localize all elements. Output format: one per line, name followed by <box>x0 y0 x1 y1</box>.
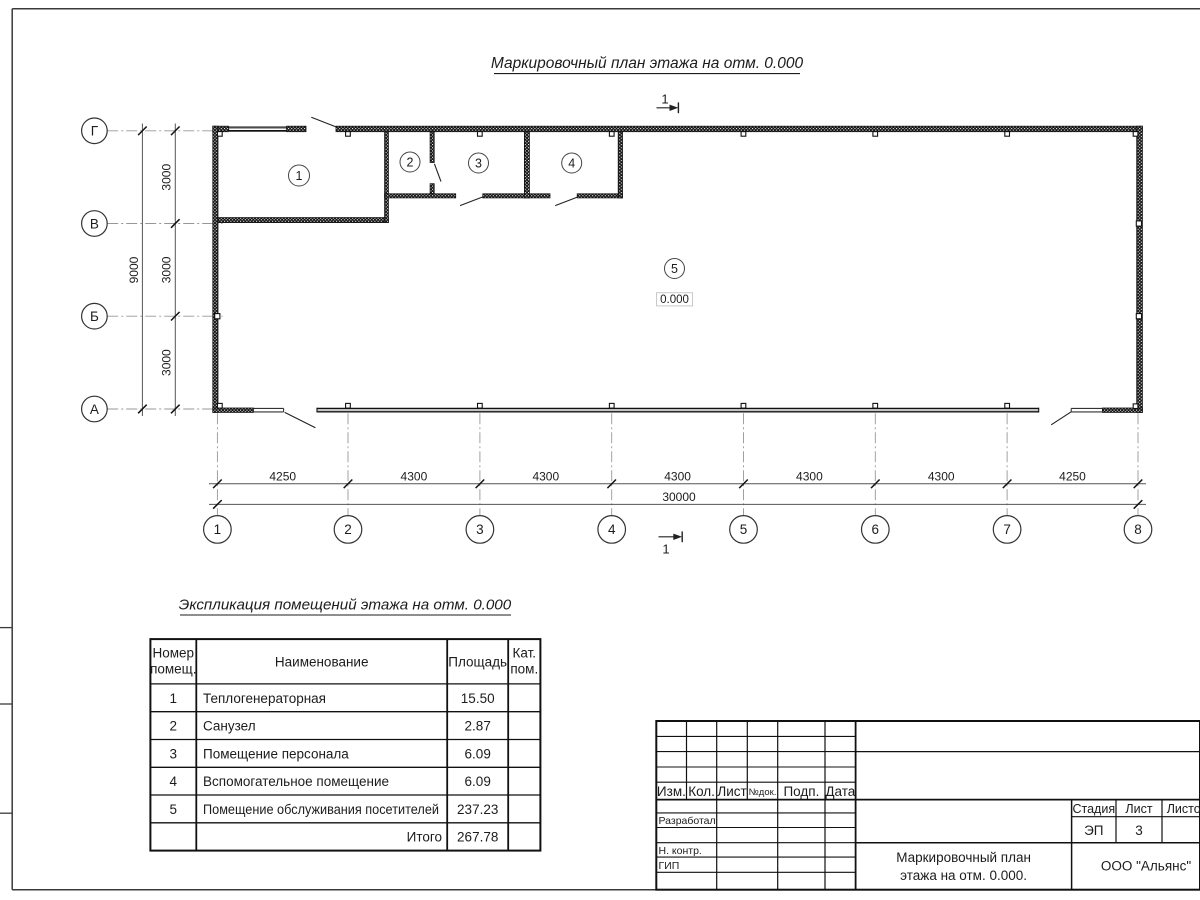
svg-text:ООО "Альянс": ООО "Альянс" <box>1101 859 1191 874</box>
svg-text:3: 3 <box>476 522 484 537</box>
svg-text:1: 1 <box>661 92 668 107</box>
svg-text:4: 4 <box>608 522 616 537</box>
svg-text:6.09: 6.09 <box>465 774 491 789</box>
svg-text:Изм.: Изм. <box>657 784 686 799</box>
svg-text:4: 4 <box>568 156 575 170</box>
svg-text:Помещение персонала: Помещение персонала <box>203 746 349 761</box>
svg-text:3: 3 <box>170 746 178 761</box>
svg-text:Кол.: Кол. <box>688 784 715 799</box>
svg-text:2: 2 <box>344 522 352 537</box>
svg-text:Площадь: Площадь <box>448 655 507 670</box>
svg-text:267.78: 267.78 <box>457 830 498 845</box>
svg-text:Г: Г <box>91 124 99 139</box>
svg-text:4: 4 <box>170 774 178 789</box>
svg-text:4300: 4300 <box>796 470 823 484</box>
svg-text:пом.: пом. <box>510 662 538 677</box>
svg-text:5: 5 <box>170 802 178 817</box>
svg-text:0.000: 0.000 <box>660 294 689 306</box>
svg-text:Наименование: Наименование <box>275 655 369 670</box>
svg-text:Подп.: Подп. <box>783 784 819 799</box>
svg-text:4300: 4300 <box>664 470 691 484</box>
svg-text:6: 6 <box>872 522 880 537</box>
svg-text:9000: 9000 <box>127 256 141 283</box>
svg-text:4250: 4250 <box>269 470 296 484</box>
svg-text:8: 8 <box>1134 522 1142 537</box>
svg-text:№док.: №док. <box>749 787 777 798</box>
svg-text:4300: 4300 <box>532 470 559 484</box>
svg-text:Санузел: Санузел <box>203 719 256 734</box>
svg-text:Вспомогательное помещение: Вспомогательное помещение <box>203 774 389 789</box>
svg-text:Теплогенераторная: Теплогенераторная <box>203 691 326 706</box>
svg-text:Н. контр.: Н. контр. <box>659 845 702 857</box>
svg-text:3: 3 <box>1135 823 1143 838</box>
svg-text:В: В <box>90 216 99 231</box>
svg-text:Лист: Лист <box>717 784 746 799</box>
svg-text:3000: 3000 <box>160 164 174 191</box>
svg-text:Б: Б <box>90 309 99 324</box>
svg-text:Экспликация помещений этажа на: Экспликация помещений этажа на отм. 0.00… <box>179 597 512 614</box>
svg-text:2: 2 <box>407 155 414 169</box>
svg-text:4300: 4300 <box>401 470 428 484</box>
svg-text:1: 1 <box>170 691 178 706</box>
svg-text:237.23: 237.23 <box>457 802 498 817</box>
svg-text:2: 2 <box>170 719 178 734</box>
svg-text:4300: 4300 <box>928 470 955 484</box>
svg-text:4250: 4250 <box>1059 470 1086 484</box>
svg-text:3000: 3000 <box>160 256 174 283</box>
svg-text:ГИП: ГИП <box>659 860 680 872</box>
svg-text:3: 3 <box>475 156 482 170</box>
svg-text:А: А <box>90 402 99 417</box>
svg-text:30000: 30000 <box>662 490 696 504</box>
svg-text:1: 1 <box>214 522 222 537</box>
svg-text:Маркировочный план этажа на от: Маркировочный план этажа на отм. 0.000 <box>491 55 804 72</box>
svg-text:2.87: 2.87 <box>465 719 491 734</box>
svg-text:3000: 3000 <box>160 349 174 376</box>
svg-text:7: 7 <box>1003 522 1011 537</box>
svg-text:1: 1 <box>662 542 669 557</box>
svg-text:ЭП: ЭП <box>1084 823 1103 838</box>
svg-text:6.09: 6.09 <box>465 746 491 761</box>
svg-text:5: 5 <box>740 522 748 537</box>
svg-text:Стадия: Стадия <box>1072 802 1115 816</box>
svg-text:5: 5 <box>671 262 678 276</box>
svg-text:15.50: 15.50 <box>461 691 495 706</box>
svg-text:Дата: Дата <box>825 784 855 799</box>
svg-text:этажа на отм. 0.000.: этажа на отм. 0.000. <box>900 868 1027 883</box>
svg-text:Лист: Лист <box>1125 802 1152 816</box>
svg-text:Помещение обслуживания посетит: Помещение обслуживания посетителей <box>203 802 439 817</box>
svg-text:Итого: Итого <box>407 830 442 845</box>
svg-text:Номер: Номер <box>153 646 195 661</box>
svg-text:помещ.: помещ. <box>150 662 196 677</box>
svg-text:1: 1 <box>296 169 303 183</box>
svg-text:Маркировочный план: Маркировочный план <box>896 850 1031 865</box>
svg-text:Разработал: Разработал <box>659 815 716 827</box>
svg-text:Кат.: Кат. <box>513 646 537 661</box>
svg-text:Листов: Листов <box>1167 802 1200 816</box>
